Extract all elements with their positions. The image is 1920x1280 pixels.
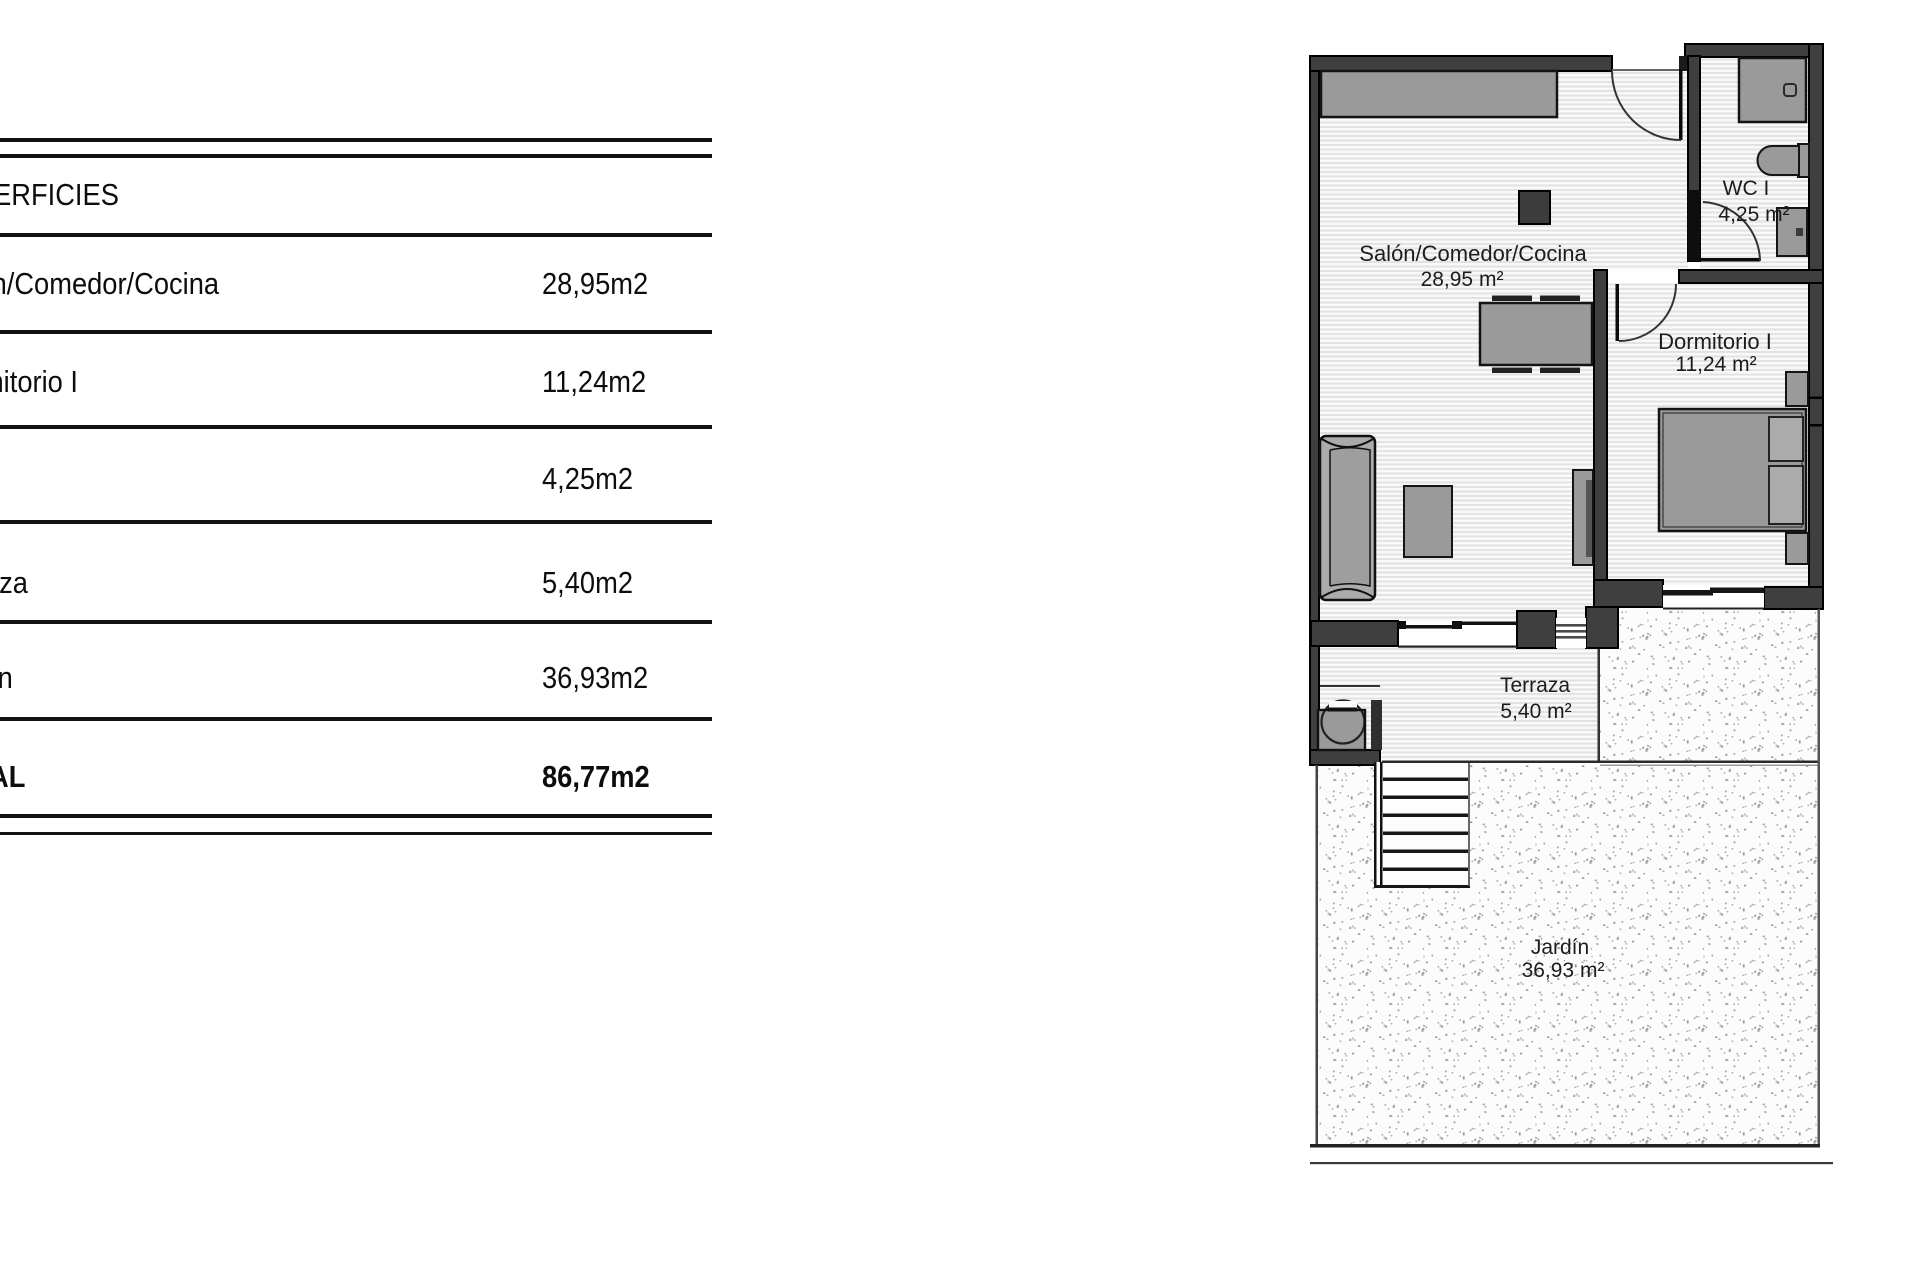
svg-text:4,25 m²: 4,25 m² — [1718, 203, 1789, 226]
svg-text:Salón/Comedor/Cocina: Salón/Comedor/Cocina — [1359, 241, 1587, 266]
svg-text:Jardín: Jardín — [1531, 936, 1589, 959]
svg-text:Dormitorio I: Dormitorio I — [1658, 329, 1772, 354]
svg-text:5,40 m²: 5,40 m² — [1500, 700, 1571, 723]
svg-text:WC I: WC I — [1723, 177, 1770, 200]
svg-text:36,93 m²: 36,93 m² — [1522, 959, 1605, 982]
svg-text:11,24 m²: 11,24 m² — [1675, 353, 1756, 376]
svg-text:Terraza: Terraza — [1500, 674, 1570, 697]
svg-text:28,95 m²: 28,95 m² — [1421, 268, 1504, 291]
